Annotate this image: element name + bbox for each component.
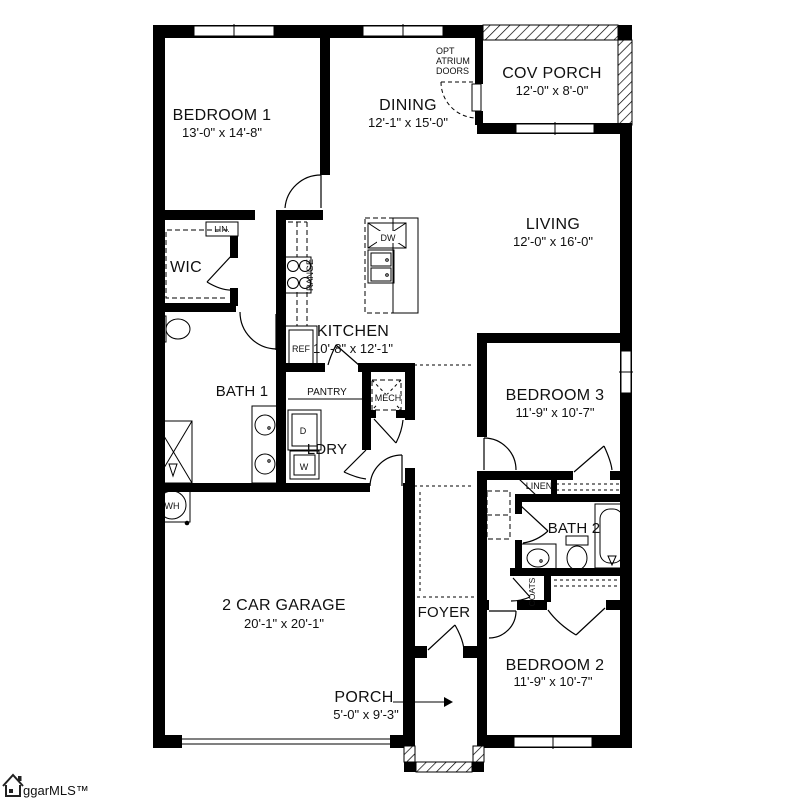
label-living-dims: 12'-0" x 16'-0" <box>513 234 593 249</box>
labels: BEDROOM 1 13'-0" x 14'-8" DINING 12'-1" … <box>165 46 605 722</box>
label-bath2: BATH 2 <box>548 520 601 537</box>
label-wic: WIC <box>170 259 202 276</box>
label-ldry: LDRY <box>307 441 348 458</box>
label-cov-porch: COV PORCH <box>502 65 602 82</box>
bedroom3-closet-shelf <box>556 484 630 490</box>
label-linen: LINEN <box>526 481 553 491</box>
label-coats: COATS <box>527 577 537 606</box>
label-cov-porch-dims: 12'-0" x 8'-0" <box>516 83 589 98</box>
logo-house-icon <box>3 775 23 796</box>
door-front <box>428 625 464 650</box>
window-bedroom1 <box>194 24 274 38</box>
door-bath2 <box>521 506 548 543</box>
label-porch: PORCH <box>334 689 393 706</box>
door-bath1 <box>240 312 276 350</box>
door-wic <box>207 254 233 290</box>
label-bedroom2: BEDROOM 2 <box>506 657 605 674</box>
opt-atrium-line2: ATRIUM <box>436 56 470 66</box>
label-dryer: D <box>300 426 307 436</box>
opt-atrium-note: OPT ATRIUM DOORS <box>436 46 470 76</box>
label-garage-dims: 20'-1" x 20'-1" <box>244 616 324 631</box>
label-kitchen-dims: 10'-8" x 12'-1" <box>313 341 393 356</box>
kitchen-sink <box>368 250 394 283</box>
label-bedroom1: BEDROOM 1 <box>173 107 272 124</box>
floor-plan-drawing: BEDROOM 1 13'-0" x 14'-8" DINING 12'-1" … <box>0 0 787 800</box>
porch-steps <box>404 746 484 772</box>
bedroom2-closet-shelf <box>548 580 630 586</box>
logo-text: ggarMLS™ <box>23 783 89 798</box>
logo: ggarMLS™ <box>3 775 89 798</box>
label-dining: DINING <box>379 97 437 114</box>
label-garage: 2 CAR GARAGE <box>222 597 346 614</box>
door-bedroom3-closet <box>574 446 612 472</box>
label-dw: DW <box>381 233 396 243</box>
label-dining-dims: 12'-1" x 15'-0" <box>368 115 448 130</box>
opt-atrium-line3: DOORS <box>436 66 469 76</box>
porch-arrow <box>393 697 453 707</box>
label-bedroom3: BEDROOM 3 <box>506 387 605 404</box>
garage-dot <box>185 521 190 526</box>
door-bedroom3 <box>484 438 516 470</box>
label-kitchen: KITCHEN <box>317 323 389 340</box>
door-mech <box>374 419 403 443</box>
bath2-vanity <box>521 544 556 572</box>
window-bedroom3 <box>619 351 633 393</box>
label-lin: LIN. <box>214 224 230 234</box>
label-range: RANGE <box>305 259 315 291</box>
label-washer: W <box>300 462 309 472</box>
label-bath1: BATH 1 <box>216 383 269 400</box>
porch-roof-hatch <box>483 25 618 40</box>
bath1-vanity <box>252 406 279 483</box>
floor-plan-page: BEDROOM 1 13'-0" x 14'-8" DINING 12'-1" … <box>0 0 787 800</box>
label-foyer: FOYER <box>418 604 471 621</box>
window-bedroom2 <box>514 735 592 749</box>
label-pantry: PANTRY <box>307 387 347 398</box>
door-bedroom2 <box>489 611 516 638</box>
label-living: LIVING <box>526 216 580 233</box>
opt-bench <box>487 491 510 539</box>
bath2-toilet <box>566 536 588 570</box>
label-ref: REF <box>292 344 311 354</box>
hall-thresholds <box>408 365 474 597</box>
door-ldry <box>344 450 366 479</box>
porch-column-hatch <box>618 40 632 125</box>
label-mech: MECH <box>375 393 402 403</box>
door-garage-entry <box>370 455 402 486</box>
garage-door <box>182 738 390 745</box>
opt-atrium-line1: OPT <box>436 46 455 56</box>
label-wh: WH <box>165 501 180 511</box>
door-bedroom1 <box>285 175 321 208</box>
label-porch-dims: 5'-0" x 9'-3" <box>333 707 399 722</box>
label-bedroom3-dims: 11'-9" x 10'-7" <box>516 405 595 420</box>
window-living-porch <box>516 122 594 135</box>
label-bedroom2-dims: 11'-9" x 10'-7" <box>514 674 593 689</box>
window-dining <box>363 24 443 38</box>
door-bedroom2-closet <box>548 608 605 635</box>
label-bedroom1-dims: 13'-0" x 14'-8" <box>182 125 262 140</box>
